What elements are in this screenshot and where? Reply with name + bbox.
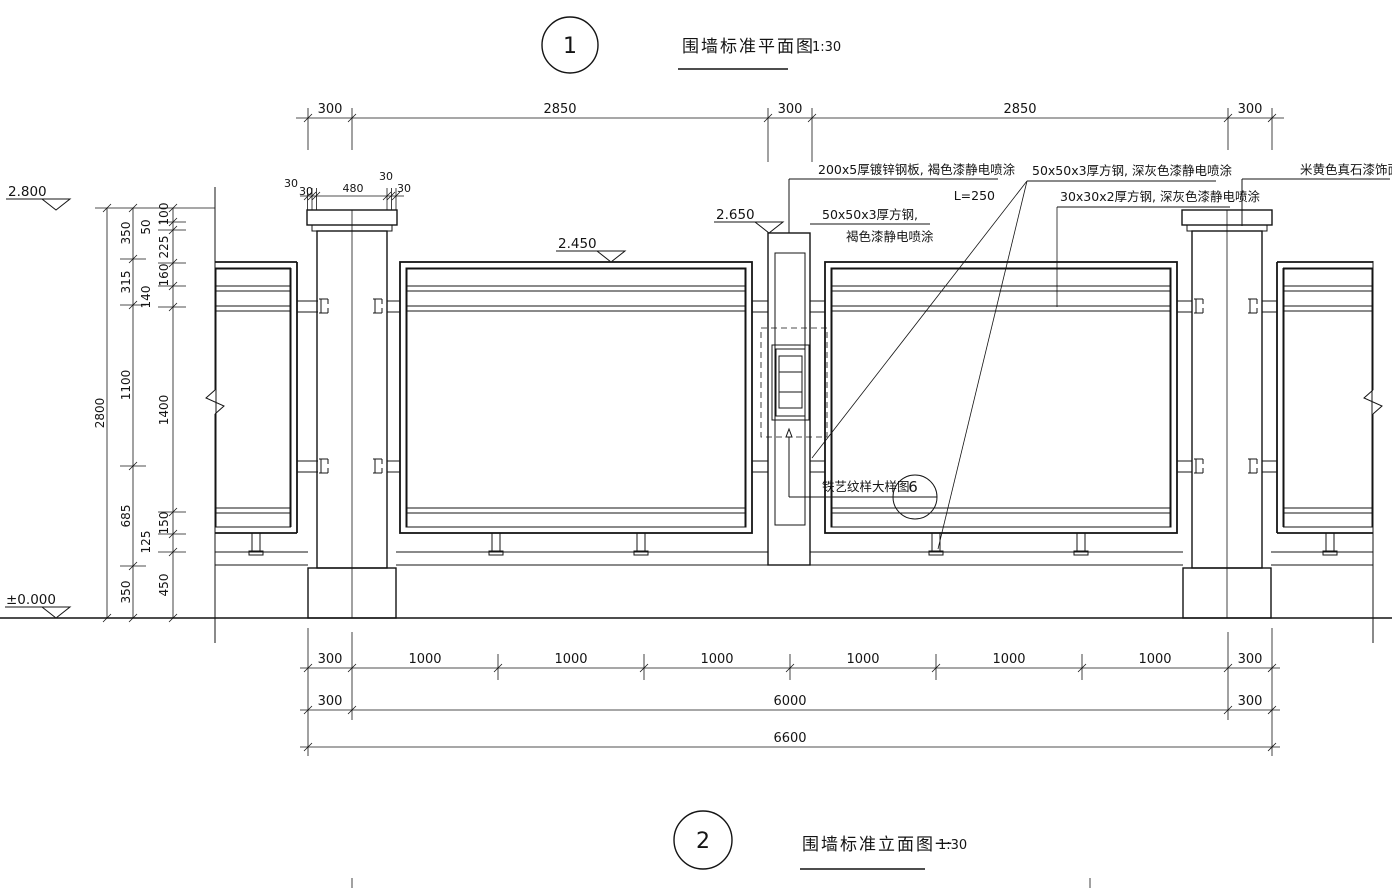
view2-scale: 1:30: [938, 838, 967, 853]
right-pillar: [1182, 210, 1272, 618]
annotation-length: L=250: [954, 188, 995, 203]
dim-text: 2850: [1003, 102, 1036, 117]
view1-name: 围墙标准平面图: [682, 37, 815, 57]
dim-text: 6600: [773, 731, 806, 746]
view1-title: 1 围墙标准平面图 1:30: [542, 17, 841, 73]
dim-text: 100: [157, 203, 171, 226]
base-rail: [215, 552, 1373, 565]
rail-clamp: [373, 299, 382, 313]
dim-text: 1100: [119, 370, 133, 401]
elevation-value: 2.650: [716, 207, 755, 223]
dim-text: 150: [157, 512, 171, 535]
rail-clamp: [1248, 459, 1257, 473]
dim-text: 300: [1238, 694, 1263, 709]
dim-left-chains: 2800 350 315 1100 685 350 100 50 225 160…: [93, 203, 215, 622]
dim-text: 1000: [992, 652, 1025, 667]
dim-text: 300: [318, 694, 343, 709]
dim-text: 1000: [700, 652, 733, 667]
gate-post: [761, 233, 827, 565]
dim-text: 300: [318, 102, 343, 117]
annotation-text: 米黄色真石漆饰面: [1300, 162, 1392, 177]
annotation-galvanized-plate: 200x5厚镀锌钢板, 褐色漆静电喷涂 L=250: [789, 162, 1016, 233]
annotation-square-steel-brown: 50x50x3厚方钢, 褐色漆静电喷涂: [810, 207, 934, 244]
rail-clamp: [373, 459, 382, 473]
rail-stubs: [297, 299, 1277, 473]
view2-number: 2: [696, 829, 710, 854]
iron-detail-callout: 铁艺纹样大样图 6: [786, 429, 937, 519]
dim-text: 685: [119, 505, 133, 528]
dim-text: 300: [318, 652, 343, 667]
dim-cap-row: 30 30 480 30 30: [284, 170, 411, 210]
dim-text: 300: [778, 102, 803, 117]
dim-text: 1000: [408, 652, 441, 667]
elevation-value: 2.800: [8, 184, 47, 200]
view2-name: 围墙标准立面图一: [802, 835, 954, 855]
gate-post-body: [768, 233, 810, 565]
iron-detail-dashed-box: [761, 328, 827, 437]
dim-text: 225: [157, 236, 171, 259]
fence-panel-2: [825, 262, 1177, 555]
dim-text: 480: [343, 182, 364, 195]
left-pillar: [307, 210, 397, 618]
annotation-text: 30x30x2厚方钢, 深灰色漆静电喷涂: [1060, 189, 1261, 204]
cad-sheet: 1 围墙标准平面图 1:30 2 围墙标准立面图一 1:30: [0, 0, 1392, 888]
left-break-line: [206, 187, 224, 643]
dim-text: 1000: [1138, 652, 1171, 667]
view2-title: 2 围墙标准立面图一 1:30: [674, 811, 967, 869]
elevation-value: ±0.000: [6, 592, 56, 608]
dim-text: 315: [119, 271, 133, 294]
right-break-line: [1364, 261, 1382, 643]
elevation-marker-2650: 2.650: [714, 207, 783, 233]
dim-bottom-row2: 300 6000 300: [300, 694, 1280, 714]
elevation-marker-0000: ±0.000: [5, 592, 70, 618]
leader-arrow: [786, 429, 792, 437]
ironwork-frame-inner: [776, 349, 805, 416]
dim-text: 300: [1238, 102, 1263, 117]
dim-text: 450: [157, 574, 171, 597]
dim-text: 350: [119, 222, 133, 245]
rail-clamp: [319, 299, 328, 313]
fence-panel-right-partial: [1277, 262, 1373, 555]
detail-ref-number: 6: [908, 478, 918, 496]
dim-text: 160: [157, 264, 171, 287]
dim-text: 1000: [846, 652, 879, 667]
elevation-marker-2800: 2.800: [6, 184, 70, 210]
dim-bottom-row3: 6600: [300, 731, 1280, 751]
annotation-text: 50x50x3厚方钢,: [822, 207, 918, 222]
annotation-text: 200x5厚镀锌钢板, 褐色漆静电喷涂: [818, 162, 1016, 177]
dim-text: 30: [299, 185, 313, 198]
rail-clamp: [1194, 299, 1203, 313]
elevation-value: 2.450: [558, 236, 597, 252]
dim-text: 2800: [93, 398, 107, 429]
ironwork-pattern: [779, 356, 802, 408]
annotation-stone-paint: 米黄色真石漆饰面: [1242, 162, 1392, 226]
dim-text: 125: [139, 531, 153, 554]
dim-text: 50: [139, 219, 153, 234]
iron-detail-label: 铁艺纹样大样图: [822, 479, 910, 494]
wall-elevation-drawing: 1 围墙标准平面图 1:30 2 围墙标准立面图一 1:30: [0, 0, 1392, 888]
annotation-text: 50x50x3厚方钢, 深灰色漆静电喷涂: [1032, 163, 1233, 178]
next-view-edge-marks: [352, 878, 1090, 888]
view1-number: 1: [563, 34, 577, 59]
dim-text: 6000: [773, 694, 806, 709]
dim-text: 1000: [554, 652, 587, 667]
fence-panel-left-partial: [215, 262, 297, 555]
view1-scale: 1:30: [812, 40, 841, 55]
rail-clamp: [1194, 459, 1203, 473]
dim-top-row: 300 2850 300 2850 300: [296, 102, 1284, 162]
annotation-text: 褐色漆静电喷涂: [846, 229, 934, 244]
dim-text: 300: [1238, 652, 1263, 667]
dim-text: 1400: [157, 395, 171, 426]
annotation-square-steel-small: 30x30x2厚方钢, 深灰色漆静电喷涂: [1057, 189, 1261, 307]
dim-text: 30: [379, 170, 393, 183]
dim-text: 30: [397, 182, 411, 195]
dim-text: 140: [139, 286, 153, 309]
rail-clamp: [319, 459, 328, 473]
dim-text: 350: [119, 581, 133, 604]
rail-clamp: [1248, 299, 1257, 313]
elevation-marker-2450: 2.450: [556, 236, 625, 262]
dim-text: 2850: [543, 102, 576, 117]
fence-panel-1: [400, 262, 752, 555]
dim-text: 30: [284, 177, 298, 190]
